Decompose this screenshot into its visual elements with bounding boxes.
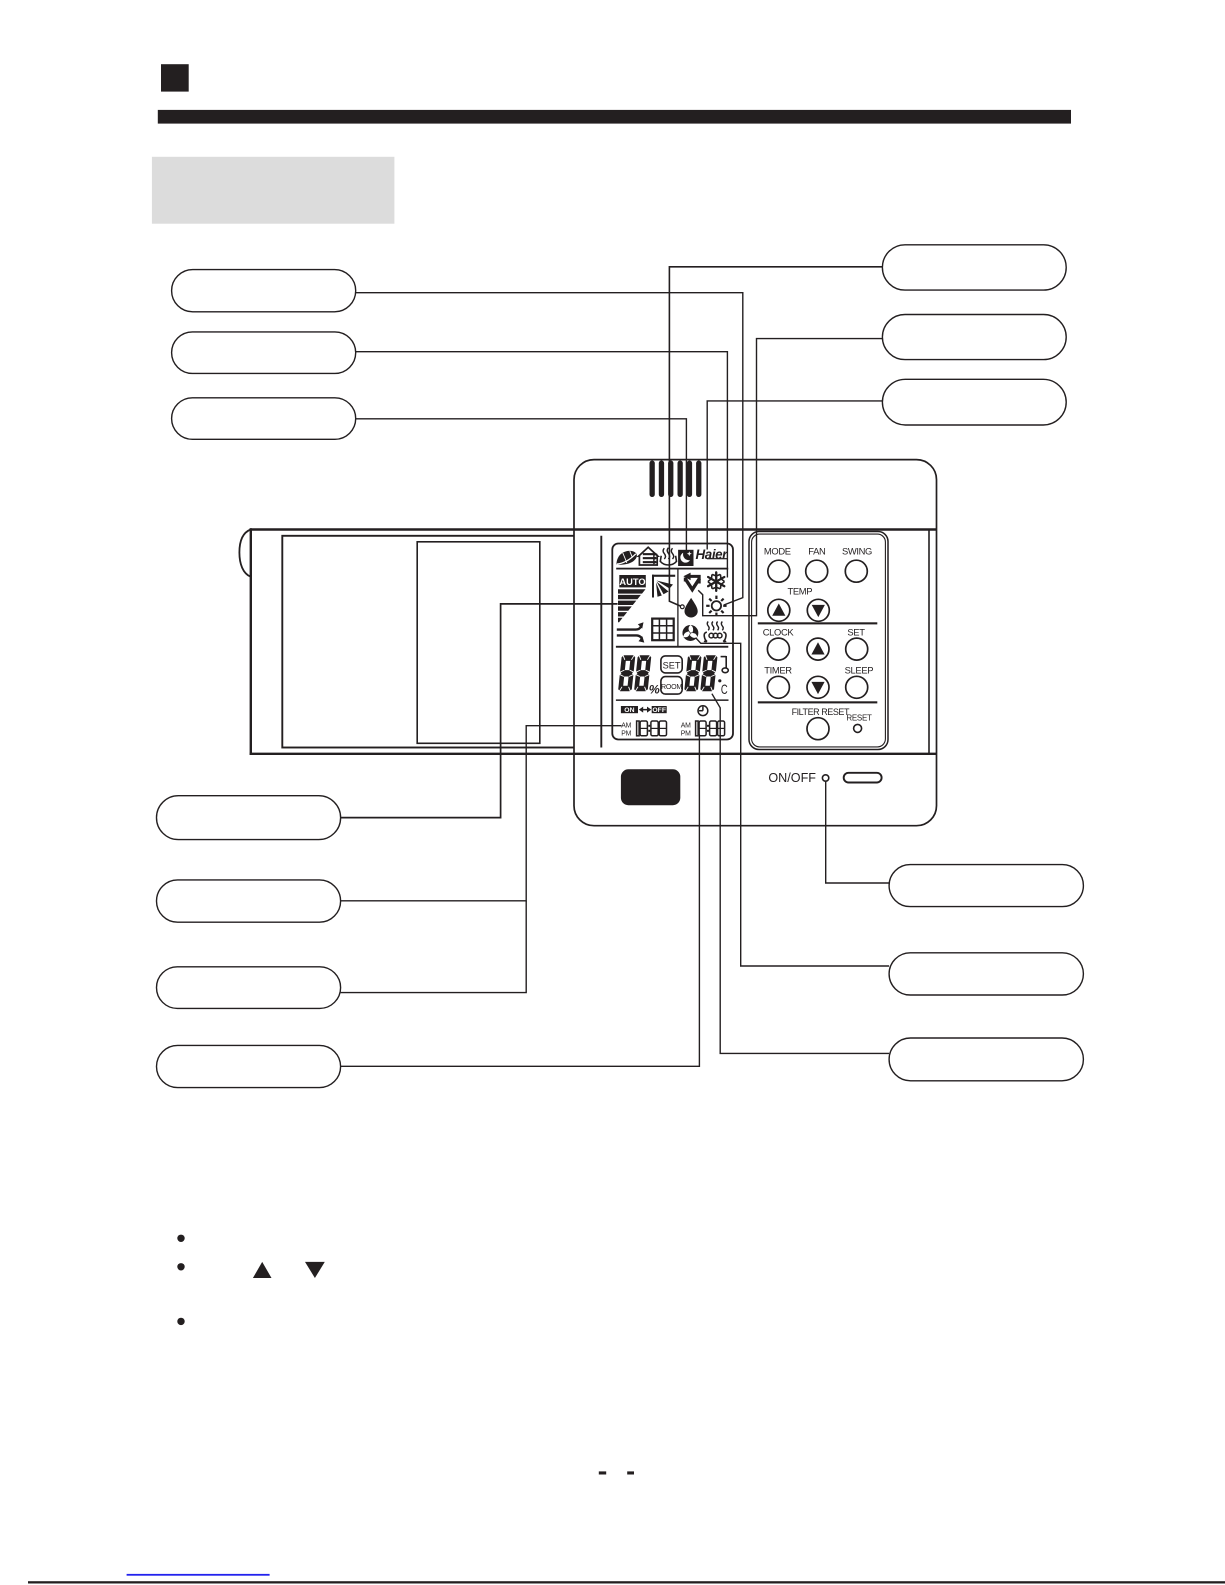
svg-text:FILTER RESET: FILTER RESET bbox=[792, 707, 850, 717]
svg-text:Haier: Haier bbox=[696, 547, 729, 562]
svg-text:ON/OFF: ON/OFF bbox=[768, 771, 816, 785]
svg-text:ON: ON bbox=[624, 707, 634, 714]
svg-text:SLEEP: SLEEP bbox=[845, 665, 874, 676]
svg-text:AUTO: AUTO bbox=[619, 577, 645, 587]
svg-text:AM: AM bbox=[621, 723, 631, 730]
svg-text:AM: AM bbox=[681, 723, 691, 730]
svg-text:ROOM: ROOM bbox=[661, 683, 682, 691]
svg-text:PM: PM bbox=[621, 730, 631, 737]
svg-text:%: % bbox=[649, 682, 660, 696]
svg-text:RESET: RESET bbox=[846, 713, 872, 722]
svg-text:SET: SET bbox=[847, 626, 865, 637]
svg-text:PM: PM bbox=[681, 730, 691, 737]
svg-text:CLOCK: CLOCK bbox=[763, 626, 795, 637]
svg-text:SWING: SWING bbox=[842, 546, 872, 557]
svg-text:OFF: OFF bbox=[652, 707, 666, 714]
svg-text:FAN: FAN bbox=[808, 546, 825, 557]
svg-text:TIMER: TIMER bbox=[764, 665, 792, 676]
svg-text:SET: SET bbox=[663, 660, 681, 670]
svg-text:MODE: MODE bbox=[764, 546, 791, 557]
svg-text:TEMP: TEMP bbox=[787, 585, 812, 596]
svg-text:C: C bbox=[721, 682, 728, 697]
